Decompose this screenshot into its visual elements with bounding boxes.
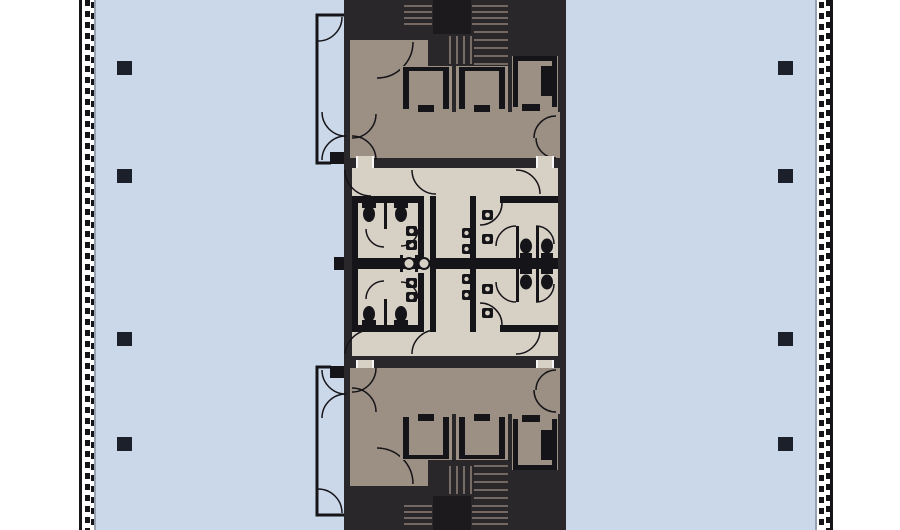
curtain-wall-right: [815, 0, 833, 530]
elevator-cab: [400, 414, 452, 460]
column: [117, 437, 132, 451]
column: [778, 61, 793, 75]
column: [117, 61, 132, 75]
elevator-cab: [456, 414, 508, 460]
elevator-lobby-bottom: [322, 368, 560, 418]
column: [117, 169, 132, 183]
elevator-cab: [400, 66, 452, 112]
column: [778, 169, 793, 183]
column: [778, 332, 793, 346]
elevator-lobby-top: [322, 112, 560, 160]
core-bottom-block: [322, 356, 566, 530]
column: [778, 437, 793, 451]
elevator-cab: [456, 66, 508, 112]
restroom-block: [334, 168, 566, 356]
core-top-block: [322, 0, 566, 168]
column: [117, 332, 132, 346]
curtain-wall-left: [79, 0, 96, 530]
elevator-cab: [512, 56, 558, 112]
elevator-cab: [512, 414, 558, 470]
floor-plan-canvas: [0, 0, 900, 530]
floor-plan-drawing: [0, 0, 900, 530]
